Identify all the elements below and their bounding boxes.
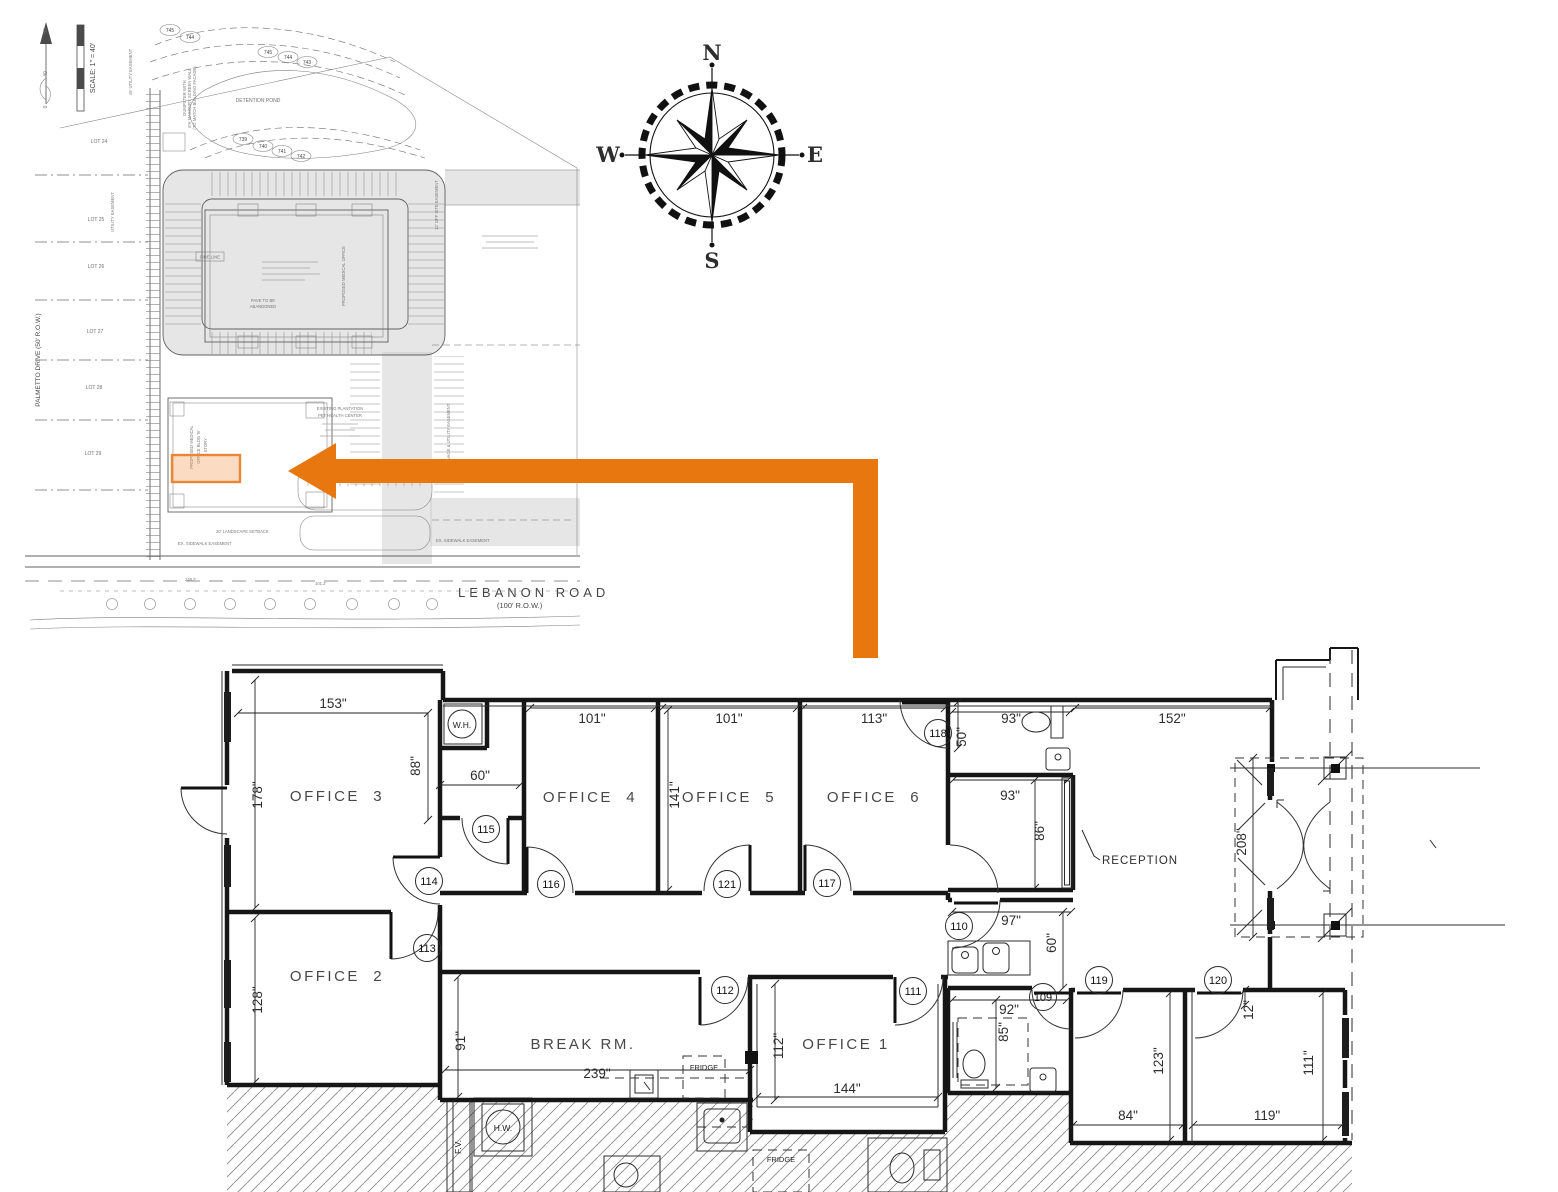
reception-leader [1082, 830, 1100, 860]
detention-pond-label: DETENTION POND [236, 98, 281, 104]
compass-w: W [595, 142, 620, 167]
dim-rr2-h: 85" [996, 1022, 1011, 1042]
scale-tick: 80 [43, 28, 49, 34]
contour-tag: 744 [186, 35, 195, 41]
dim-office3-w: 153" [319, 696, 347, 711]
lot-28: LOT 28 [86, 385, 103, 391]
lot-26: LOT 26 [88, 264, 105, 270]
palmetto-drive-label: PALMETTO DRIVE (50' R.O.W.) [35, 313, 42, 406]
canopy-inner [1283, 667, 1326, 700]
building-b-label-3: 1 STORY [203, 438, 208, 456]
dim-rr1-w: 93" [1001, 711, 1021, 726]
compass-n: N [702, 40, 721, 65]
dim-rr2-w: 92" [999, 1002, 1019, 1017]
sidewalk-easement-label-2: EX. SIDEWALK EASEMENT [436, 538, 490, 543]
dimension-lines [238, 680, 1342, 1140]
dim-rm120-h: 111" [1301, 1050, 1316, 1076]
door-tag-110: 110 [950, 921, 968, 933]
dim-rm119-w: 84" [1118, 1108, 1138, 1123]
fridge-label-a: FRIDGE [690, 1063, 718, 1072]
dim-break-h: 91" [453, 1031, 468, 1051]
lebanon-row-label: (100' R.O.W.) [497, 601, 543, 610]
lot-29: LOT 29 [85, 451, 102, 457]
pet-center-label-1: EXISTING PLANTATION [317, 406, 363, 411]
contour-tag: 745 [166, 28, 175, 34]
dim-rm120-offset: 12" [1241, 1000, 1256, 1020]
contour-tag: 744 [284, 55, 293, 61]
scale-bar: 80 40 0 SCALE: 1" = 40' [43, 25, 97, 111]
dim-2482: 248.2' [185, 577, 196, 582]
dumpster-note-3: (TO MATCH BUILDING FACADE) [192, 66, 197, 130]
dim-hall-w: 97" [1001, 913, 1021, 928]
floor-plan: OFFICE 3 OFFICE 4 OFFICE 5 OFFICE 6 OFFI… [181, 648, 1505, 1192]
door-tag-111: 111 [905, 986, 922, 998]
pave-note-1: PAVE TO BE [251, 298, 275, 303]
dim-office3-h: 178" [250, 781, 265, 809]
door-tag-112: 112 [716, 985, 734, 997]
dim-office4-w: 101" [578, 711, 606, 726]
pave-note-2: ABANDONED [250, 304, 277, 309]
door-tag-109: 109 [1034, 992, 1052, 1004]
scale-tick: 40 [43, 71, 49, 77]
contour-tag: 745 [264, 50, 273, 56]
hot-water-label: H.W. [494, 1123, 512, 1133]
water-heater-label: W.H. [453, 720, 471, 730]
right-lot-note [482, 236, 538, 248]
offsite-easement-label: 12' OFF SITE EASEMENT [434, 180, 439, 230]
dim-break-w: 239" [583, 1066, 611, 1081]
room-label-office5: OFFICE 5 [682, 789, 776, 806]
room-label-reception: RECEPTION [1102, 855, 1178, 867]
fire-line-label: FIRE LINE [200, 255, 220, 260]
fridge-label-b: FRIDGE [767, 1155, 795, 1164]
scale-label: SCALE: 1" = 40' [90, 43, 97, 93]
site-plan: 745 744 745 744 743 739 740 741 742 80 4… [25, 22, 609, 629]
fv-label: F.V. [453, 1140, 463, 1154]
dim-office1-h: 112" [771, 1033, 786, 1060]
room-label-office6: OFFICE 6 [827, 789, 921, 806]
dim-closet-w: 60" [470, 768, 490, 783]
door-tag-118: 118 [929, 728, 947, 740]
lot-25: LOT 25 [88, 217, 105, 223]
lot-27: LOT 27 [87, 329, 104, 335]
scale-tick: 0 [43, 105, 49, 108]
architectural-sheet: 745 744 745 744 743 739 740 741 742 80 4… [0, 0, 1558, 1192]
setback-label: 20' LANDSCAPE SETBACK [216, 529, 269, 534]
dimension-ticks [234, 676, 1346, 1144]
dim-rr1-h: 50" [954, 727, 969, 747]
sidewalk-easement-label: EX. SIDEWALK EASEMENT [178, 541, 232, 546]
dim-hall-h: 60" [1044, 933, 1059, 953]
contour-tag: 742 [297, 154, 306, 160]
pet-center-label-2: PET HEALTH CENTER [318, 413, 362, 418]
door-tag-119: 119 [1090, 975, 1108, 987]
dim-office5-h: 141" [667, 781, 682, 809]
compass-rose: N E S W [595, 40, 823, 273]
lot-24: LOT 24 [91, 139, 108, 145]
parking-row [165, 202, 201, 328]
utility-easement-label-2: UTILITY EASEMENT [110, 192, 115, 232]
vertical-drive [382, 352, 432, 564]
compass-e: E [807, 142, 823, 167]
parking-row [206, 172, 402, 196]
contour-tag: 740 [259, 144, 268, 150]
pond-outline [189, 70, 415, 158]
street-trees [107, 599, 438, 610]
room-label-office3: OFFICE 3 [290, 788, 384, 805]
walls [227, 671, 1352, 1143]
dim-rm119-h: 123" [1151, 1047, 1166, 1075]
door-tag-120: 120 [1209, 975, 1227, 987]
utility-easement-label: 15' UTILITY EASEMENT [128, 48, 133, 95]
dim-office1-w: 144" [833, 1081, 861, 1096]
compass-s: S [704, 248, 719, 273]
dim-storage-h: 86" [1032, 821, 1047, 841]
door-tag-115: 115 [477, 824, 495, 836]
dim-office2-h: 128" [250, 986, 265, 1014]
contour-tag: 743 [303, 60, 312, 66]
room-label-break-rm: BREAK RM. [530, 1036, 635, 1053]
locator-arrow [288, 443, 878, 658]
dim-rm120-w: 119" [1254, 1108, 1281, 1123]
dim-storage-w: 93" [1000, 788, 1020, 803]
parking-row [206, 332, 372, 354]
contour-tag: 741 [278, 149, 287, 155]
door-tag-113: 113 [418, 943, 436, 955]
canopy-walls [1276, 648, 1358, 700]
door-tag-116: 116 [542, 879, 560, 891]
room-label-office2: OFFICE 2 [290, 968, 384, 985]
dim-east-w: 152" [1158, 711, 1186, 726]
north-drive [445, 170, 580, 205]
door-tag-121: 121 [718, 879, 736, 891]
dim-1012: 101.2' [315, 581, 326, 586]
door-tag-117: 117 [818, 878, 836, 890]
lebanon-road-label: LEBANON ROAD [458, 585, 609, 600]
room-label-office4: OFFICE 4 [543, 789, 637, 806]
contour-tag: 739 [239, 137, 248, 143]
dim-wh-h: 88" [408, 756, 423, 776]
building-a-label: PROPOSED MEDICAL OFFICE [341, 246, 346, 306]
dim-office6-w: 113" [861, 711, 888, 726]
highlighted-suite [172, 455, 240, 482]
room-label-office1: OFFICE 1 [802, 1036, 890, 1053]
dumpster-pad [163, 133, 185, 151]
windows [224, 692, 1349, 1136]
curb-ticks [146, 90, 160, 560]
dim-vestibule-h: 208" [1234, 828, 1249, 856]
door-tag-114: 114 [420, 876, 438, 888]
dim-office5-w: 101" [715, 711, 743, 726]
